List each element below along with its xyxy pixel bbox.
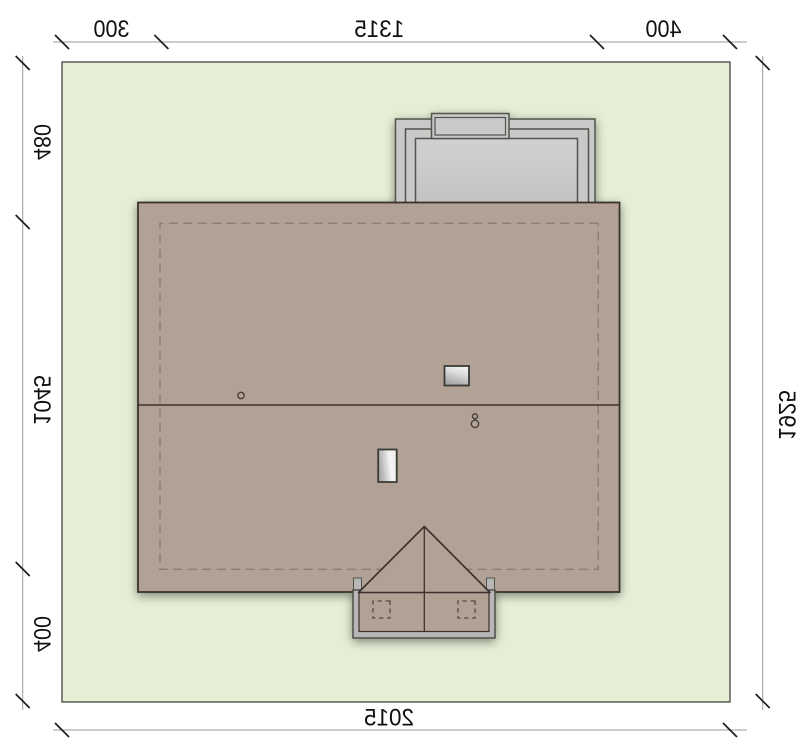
terrace-steps bbox=[396, 114, 596, 206]
right-dimension-line: 1925 bbox=[756, 56, 800, 710]
dim-label-top-400: 400 bbox=[646, 16, 682, 43]
chimney bbox=[445, 366, 470, 386]
terrace-planter bbox=[432, 114, 510, 139]
dim-label-left-480: 480 bbox=[28, 124, 55, 160]
dim-label-top-1315: 1315 bbox=[354, 16, 404, 43]
dim-label-left-400: 400 bbox=[28, 616, 55, 652]
dim-label-bottom-2015: 2015 bbox=[364, 705, 414, 732]
dim-label-right-1925: 1925 bbox=[773, 390, 800, 440]
bottom-dimension-line: 2015 bbox=[53, 705, 747, 738]
main-roof bbox=[138, 203, 620, 593]
top-dimension-line: 400 1315 300 bbox=[53, 16, 747, 49]
site-plan-drawing: 400 1315 300 2015 1925 480 1045 400 bbox=[0, 0, 800, 756]
roof-window bbox=[378, 450, 397, 483]
site-plan-sheet: 400 1315 300 2015 1925 480 1045 400 bbox=[0, 0, 800, 756]
dim-label-left-1045: 1045 bbox=[28, 375, 55, 425]
dim-label-top-300: 300 bbox=[94, 16, 130, 43]
left-dimension-line: 480 1045 400 bbox=[16, 56, 55, 710]
